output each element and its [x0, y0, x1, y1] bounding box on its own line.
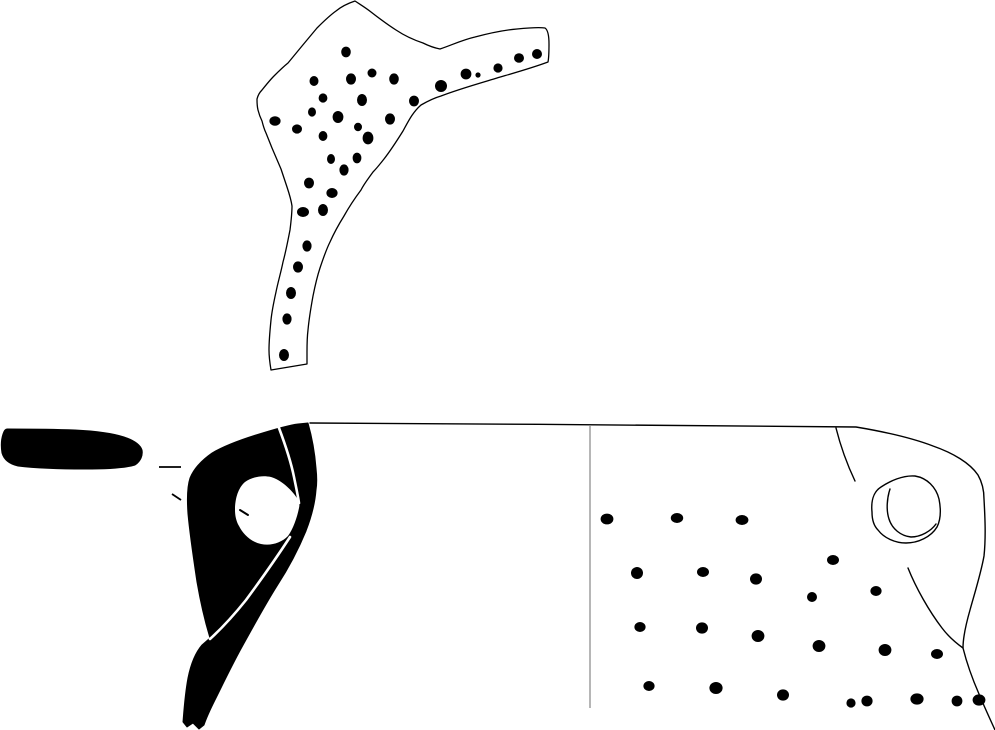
ink-dot — [861, 696, 872, 707]
upper-sherd-outline — [257, 1, 549, 370]
ink-dot — [302, 240, 311, 251]
ink-dot — [601, 514, 614, 525]
rim-section-bar — [1, 429, 142, 469]
ink-dot — [750, 573, 762, 584]
body-profile — [310, 423, 995, 730]
ink-dot — [827, 555, 839, 565]
ink-dot — [409, 96, 419, 107]
ink-dot — [308, 107, 316, 116]
ink-dot — [973, 694, 986, 705]
ink-dot — [269, 116, 280, 126]
ink-dot — [870, 586, 881, 596]
archaeological-drawing-canvas — [0, 0, 995, 730]
ink-dot — [736, 515, 749, 525]
ink-dot — [514, 53, 524, 63]
ink-dot — [493, 63, 502, 72]
ink-dot — [389, 73, 399, 84]
ink-dot — [341, 47, 351, 58]
ink-dot — [363, 132, 374, 145]
ink-dot — [631, 567, 643, 579]
lug-hole-outer-outline — [872, 476, 941, 543]
ink-dot — [435, 80, 447, 92]
ink-dot — [634, 622, 645, 632]
rim-section — [1, 429, 142, 469]
body-inner-curve — [908, 568, 963, 648]
ink-dot — [319, 93, 328, 102]
ink-dot — [327, 154, 335, 164]
ink-dot — [752, 630, 765, 642]
ink-dot — [354, 123, 362, 131]
ink-dot — [333, 111, 344, 123]
ink-dot — [339, 164, 348, 175]
lug-hole-inner-outline — [887, 489, 936, 537]
body-profile-dots — [601, 513, 986, 708]
ink-dot — [353, 153, 362, 164]
ink-dot — [461, 69, 472, 80]
ink-dot — [282, 313, 291, 324]
handle-section-body — [183, 423, 317, 729]
ink-dot — [310, 76, 319, 86]
leader-dash-lower — [172, 494, 181, 500]
ink-dot — [346, 73, 356, 84]
ink-dot — [326, 188, 337, 198]
ink-dot — [319, 131, 328, 141]
ink-dot — [368, 69, 377, 78]
ink-dot — [475, 72, 480, 77]
pottery-illustration — [0, 0, 995, 730]
ink-dot — [879, 644, 892, 656]
ink-dot — [293, 261, 303, 272]
ink-dot — [304, 178, 314, 189]
ink-dot — [286, 287, 296, 299]
ink-dot — [297, 207, 309, 217]
ink-dot — [292, 124, 302, 133]
upper-sherd-plan — [257, 1, 549, 370]
ink-dot — [279, 349, 289, 361]
ink-dot — [696, 622, 708, 633]
ink-dot — [697, 567, 709, 577]
ink-dot — [357, 94, 367, 106]
ink-dot — [671, 513, 683, 523]
ink-dot — [931, 649, 943, 659]
ink-dot — [385, 113, 395, 124]
ink-dot — [807, 592, 817, 602]
ink-dot — [952, 696, 963, 707]
ink-dot — [709, 682, 722, 694]
ink-dot — [532, 49, 542, 59]
ink-dot — [318, 204, 328, 216]
ink-dot — [846, 698, 855, 707]
rim-inner-curve — [836, 428, 855, 481]
leader-marks — [159, 467, 181, 500]
ink-dot — [643, 681, 654, 691]
ink-dot — [910, 693, 923, 704]
handle-section — [183, 423, 317, 729]
ink-dot — [777, 689, 789, 700]
ink-dot — [813, 640, 826, 652]
